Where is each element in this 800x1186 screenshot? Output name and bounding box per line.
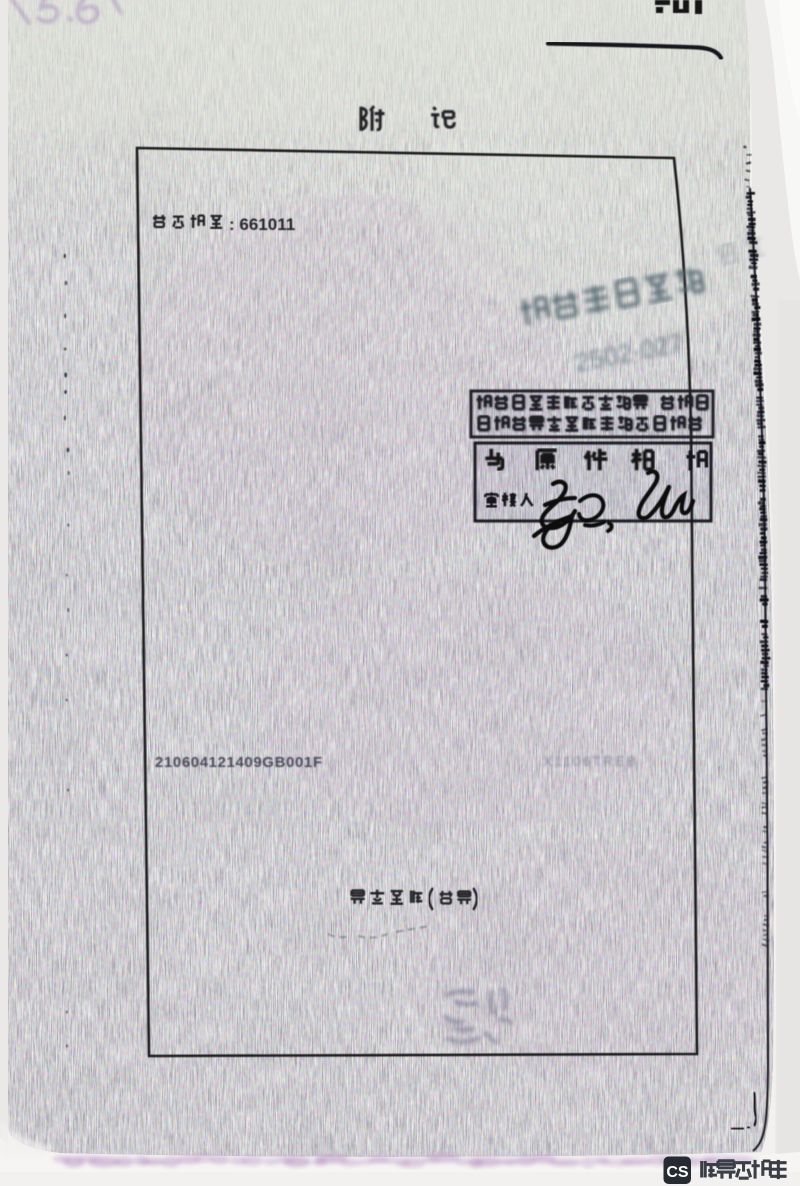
svg-text:: 661011: : 661011 — [229, 215, 295, 234]
svg-text:X1106TREB: X1106TREB — [543, 753, 638, 769]
svg-text:CS: CS — [666, 1164, 689, 1181]
svg-text:210604121409GB001F: 210604121409GB001F — [155, 754, 323, 771]
